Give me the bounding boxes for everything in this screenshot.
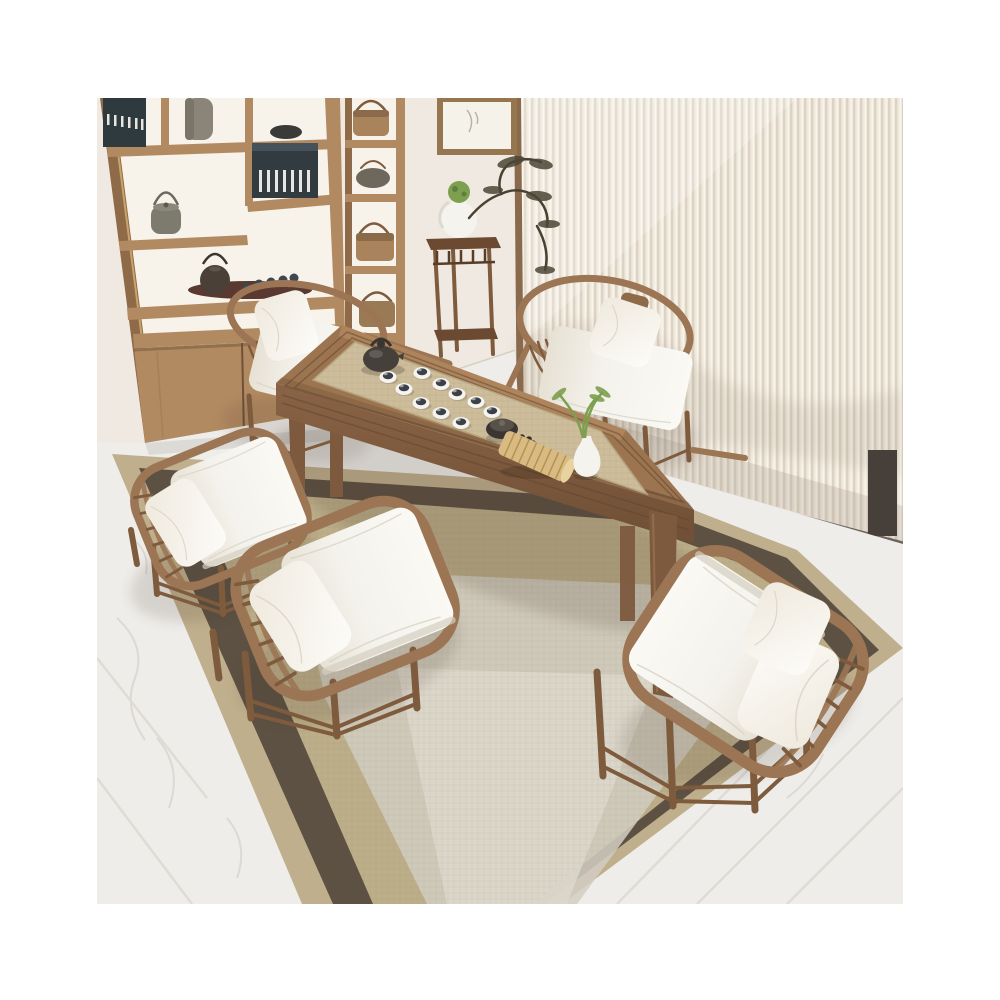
vase-plant	[448, 181, 470, 203]
stand-lower-shelf	[434, 328, 498, 341]
page	[0, 0, 1000, 1000]
shelf-divider	[161, 98, 169, 147]
product-photo	[97, 98, 903, 904]
box-set	[252, 143, 318, 198]
shelf-bowl	[270, 125, 302, 139]
shelf-vase	[185, 98, 213, 140]
artwork	[437, 98, 517, 155]
book-set	[103, 98, 146, 147]
stand-top	[426, 237, 501, 250]
scene-svg	[97, 98, 903, 904]
dark-panel	[868, 450, 897, 536]
table-leg	[620, 526, 635, 621]
shelf-divider	[245, 98, 253, 206]
